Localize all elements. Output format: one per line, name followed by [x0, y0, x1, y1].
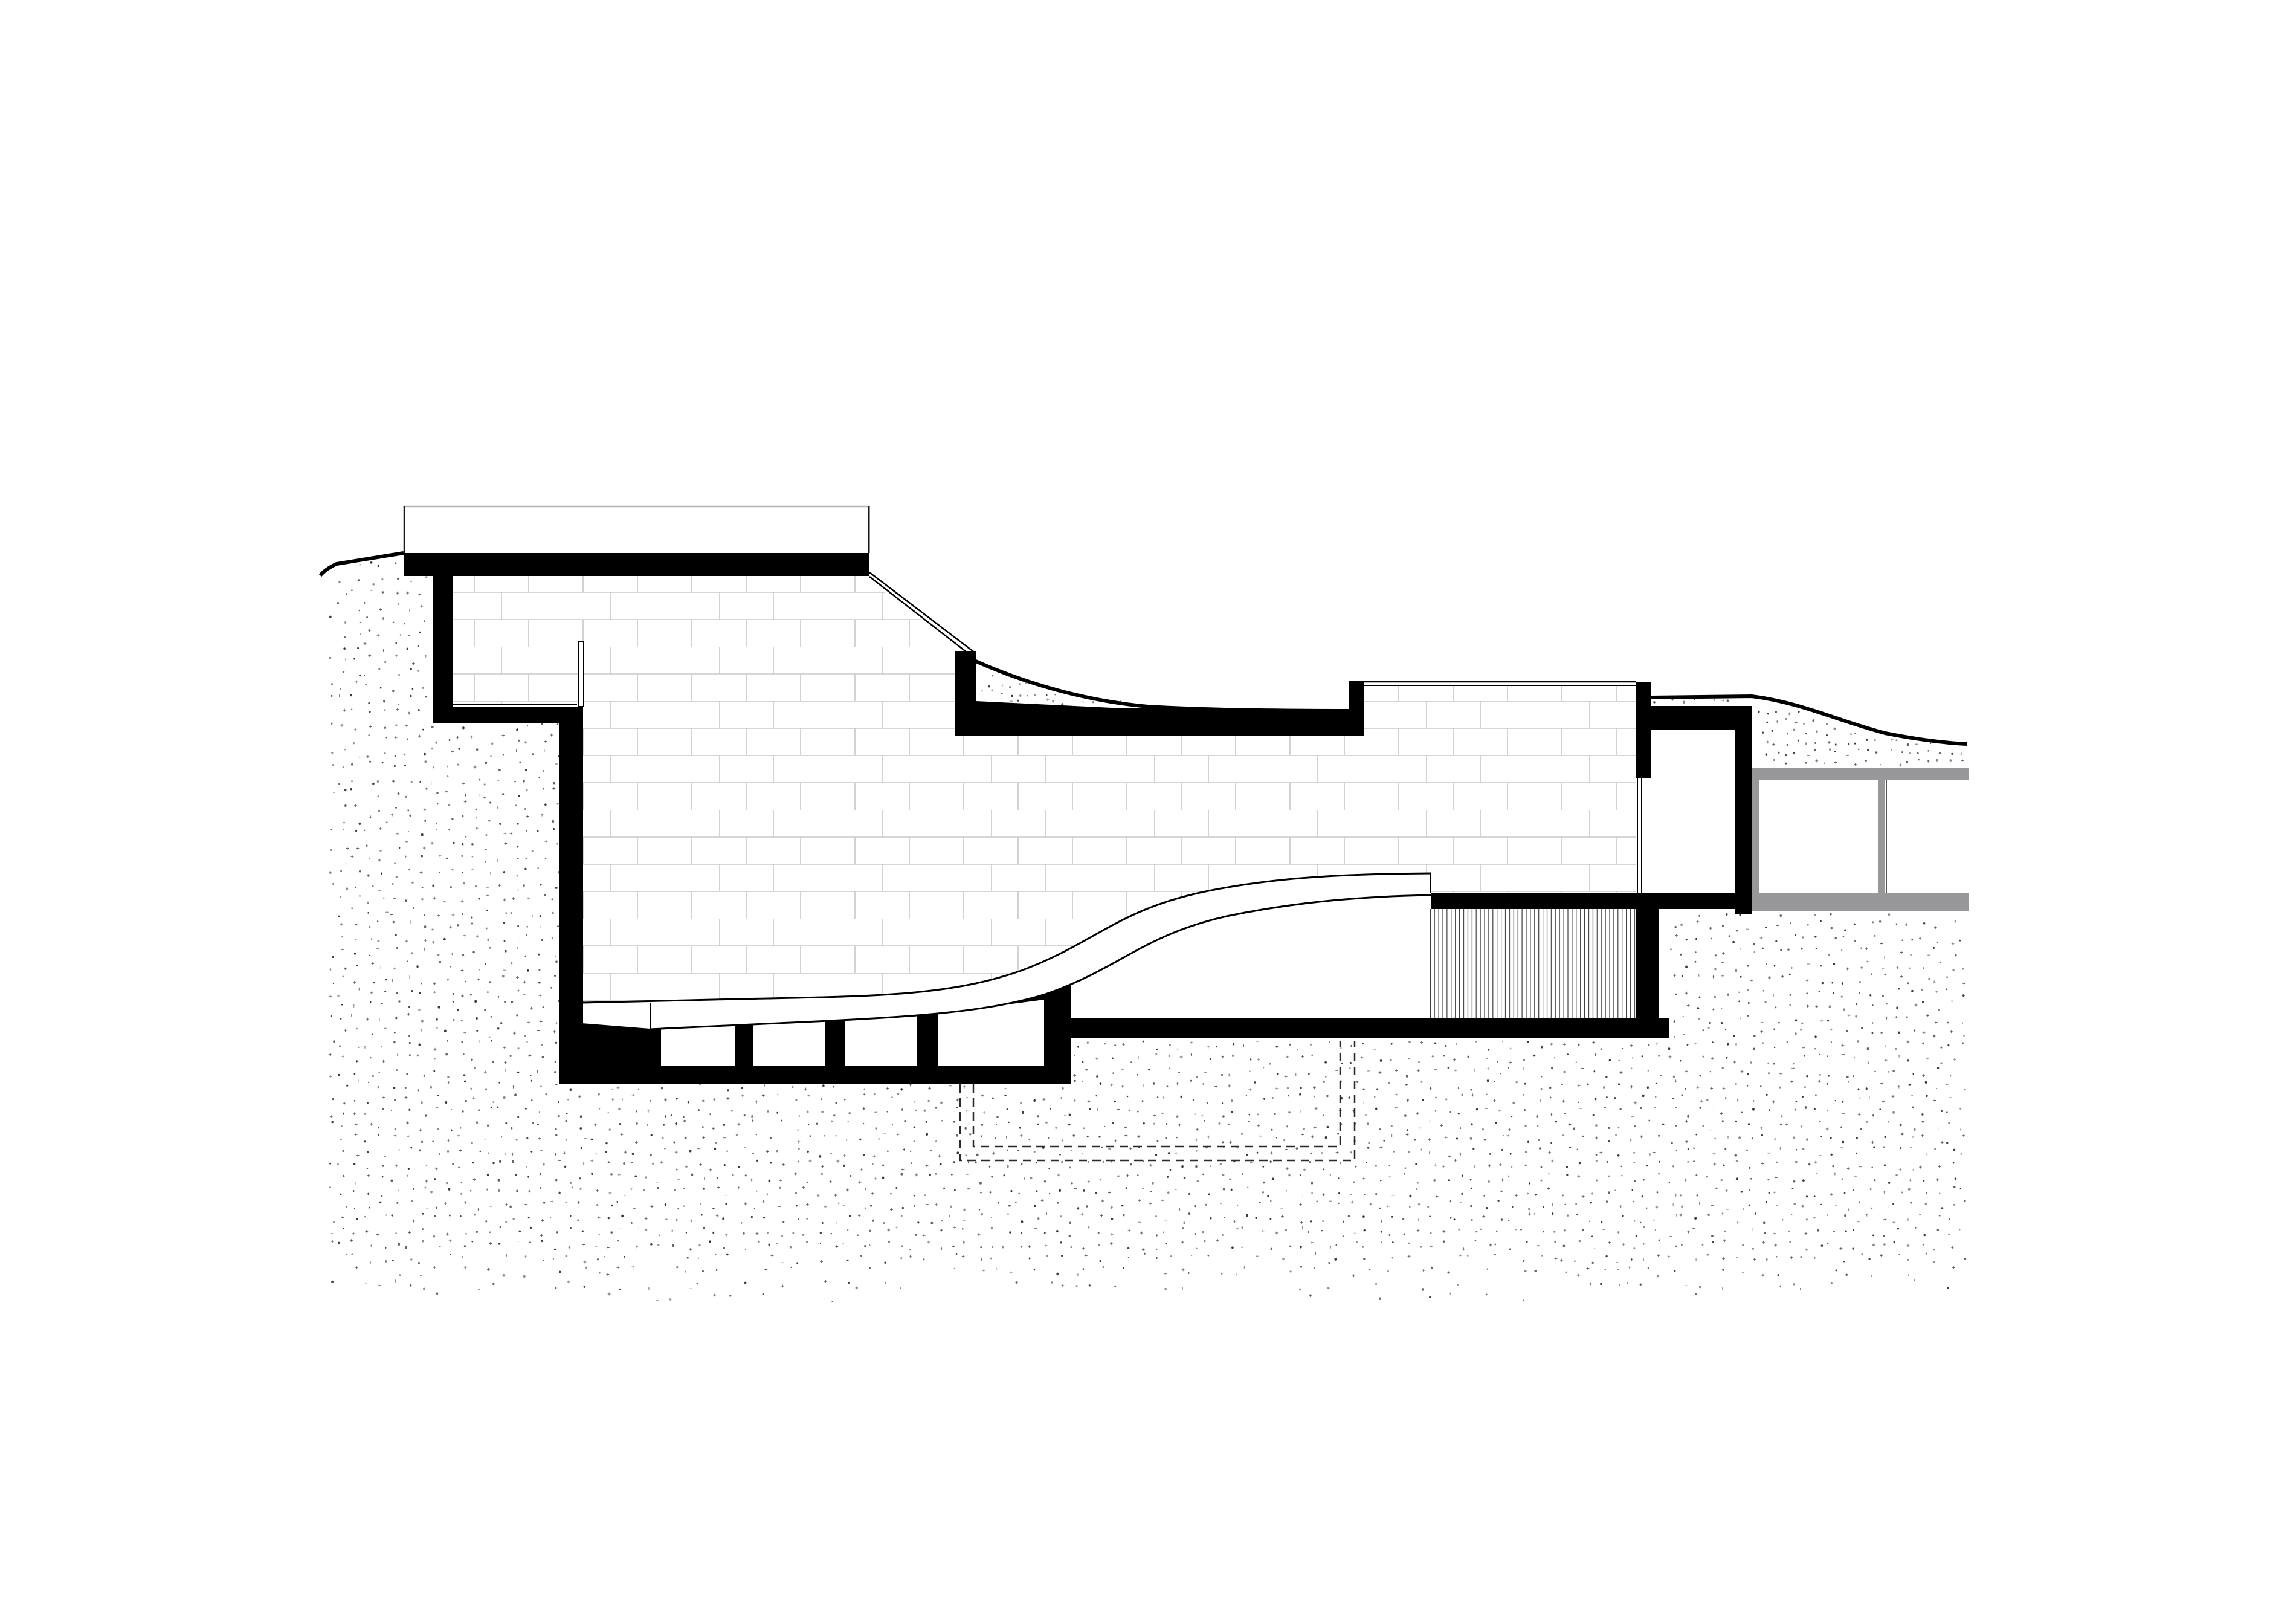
- balustrade: [579, 642, 584, 707]
- pier-gap: [661, 1025, 735, 1066]
- step-retaining-wall: [559, 707, 583, 1033]
- eave-parapet: [955, 651, 976, 736]
- roof-band: [404, 553, 869, 576]
- pier-gap: [845, 1015, 917, 1066]
- drawing-page: [0, 0, 2296, 1624]
- link-end-wall: [1735, 706, 1752, 914]
- entry-floor-slab: [433, 707, 559, 723]
- floor-grille: [1431, 909, 1636, 1018]
- roof-slab: [404, 506, 869, 553]
- pier-gap: [753, 1021, 825, 1066]
- section-drawing: [0, 0, 2296, 1624]
- link-frame-sill: [1752, 893, 1969, 911]
- door-header-wall: [1636, 682, 1651, 778]
- link-frame-jamb: [1752, 768, 1759, 911]
- thin-foundation-slab: [1071, 1018, 1669, 1038]
- link-frame-mullion: [1878, 780, 1885, 893]
- link-frame-head: [1752, 768, 1969, 780]
- pit-wall: [1636, 893, 1659, 1018]
- left-wall: [433, 576, 453, 723]
- entry-floor-band: [1431, 893, 1752, 909]
- grille-hatch: [1431, 909, 1636, 1018]
